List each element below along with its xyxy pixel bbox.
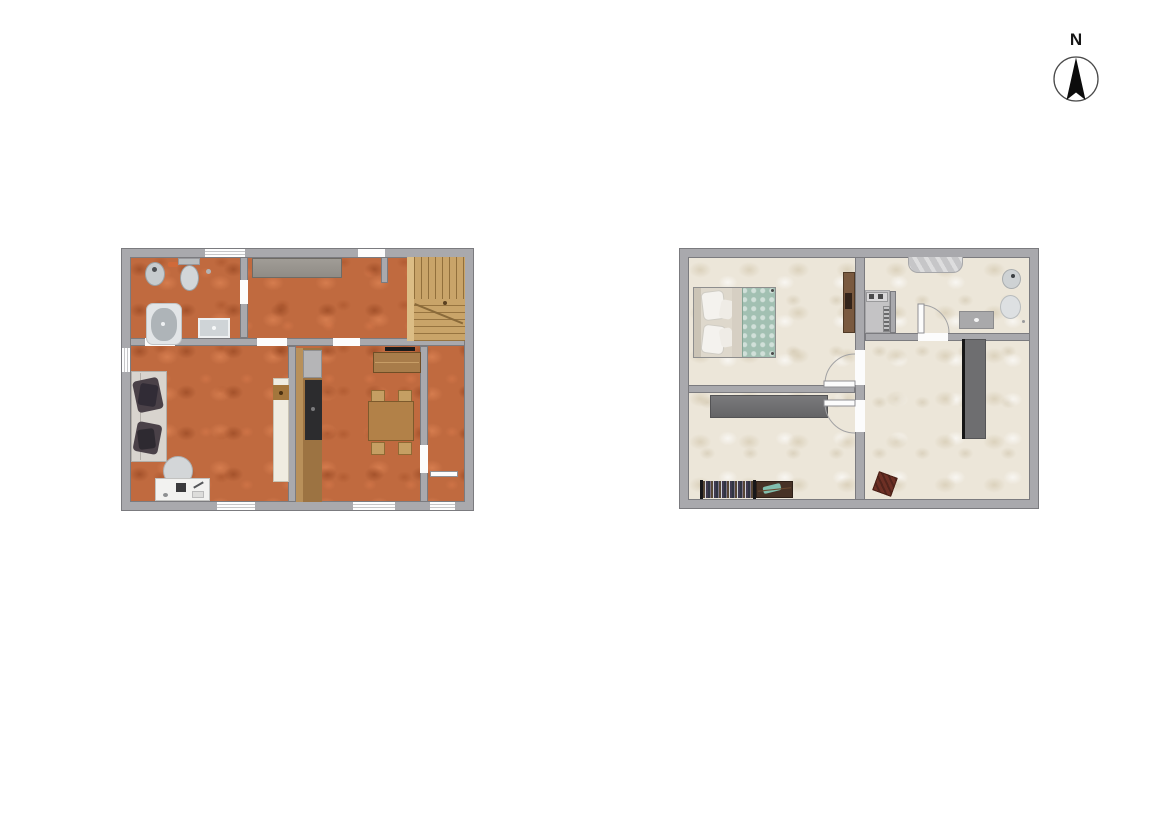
window-top [205, 249, 245, 257]
vanity-drain [974, 318, 979, 322]
toilet-icon [180, 265, 199, 291]
counter-stove [305, 380, 322, 440]
kitchen-corridor-wall [420, 346, 428, 502]
cabinet-dark-edge [962, 339, 965, 439]
sofa-pillow-2 [137, 383, 158, 408]
bidet-drain [152, 267, 157, 272]
bed-corner-dot-1 [771, 289, 774, 292]
bathroom-door-leaf [918, 304, 924, 333]
wardrobe-handle-item [845, 293, 852, 309]
bedroom-door-arc [825, 354, 855, 384]
desk-icon [155, 478, 210, 501]
counter-wood-edge [296, 348, 303, 502]
window-bottom-living [217, 502, 255, 510]
kitchen-counter-icon [296, 348, 322, 502]
washbasin-drain [212, 326, 216, 330]
rack-end-cap-1 [700, 480, 703, 499]
vanity-sink-icon [959, 311, 994, 329]
sideboard-shelf-line [375, 362, 419, 363]
hall-wardrobe [252, 258, 342, 278]
ground-floor-plan [122, 249, 473, 510]
nook-wall [890, 291, 896, 333]
toilet-roll [206, 269, 211, 274]
counter-fridge [303, 350, 322, 378]
bidet-icon [145, 262, 165, 286]
rack-clothes [700, 481, 756, 498]
compass-north-label: N [1048, 30, 1104, 50]
stair-upper-treads [414, 257, 465, 299]
nook-item-1 [869, 294, 874, 299]
dining-chair-3 [371, 442, 385, 455]
bed-corner-dot-2 [771, 352, 774, 355]
hall-living-door-opening [257, 338, 287, 346]
floor-plan-canvas: N [0, 0, 1154, 817]
towel-icon [168, 262, 178, 267]
desk-papers [192, 491, 204, 498]
bathroom-door-opening [240, 280, 248, 304]
desk-item-round [163, 493, 168, 497]
sofa-pillow-4 [137, 428, 156, 450]
corridor-door-leaf [430, 471, 458, 477]
second-bedroom-wardrobe [710, 395, 828, 418]
bed-blanket [742, 288, 775, 357]
upper-toilet-icon [1002, 269, 1021, 289]
bathtub-icon [146, 303, 182, 345]
second-bedroom-door-leaf [824, 400, 855, 406]
bedroom-dividing-wall [688, 385, 855, 393]
clothes-rack-icon [700, 481, 793, 498]
bed-fold-strip [732, 288, 742, 357]
living-kitchen-wall [288, 346, 296, 502]
entrance-opening [358, 249, 385, 257]
compass: N [1048, 30, 1104, 110]
upper-toilet-dot [1011, 274, 1015, 278]
bedroom-door-opening [855, 350, 865, 385]
desk-pen [193, 481, 204, 488]
compass-rose-icon [1048, 50, 1104, 108]
upper-bidet-dot [1022, 320, 1025, 323]
cabinet-knob [279, 391, 283, 395]
stair-wall-stub [381, 257, 388, 283]
tall-cabinet-icon [962, 339, 986, 439]
stool-icon [872, 471, 898, 497]
radiator-icon [884, 307, 889, 331]
sofa-icon [131, 371, 167, 462]
second-bedroom-door-opening [855, 400, 865, 432]
staircase-icon [407, 257, 465, 341]
washbasin-icon [198, 318, 230, 338]
desk-nook [865, 290, 890, 333]
shower-tub-icon [908, 257, 963, 273]
corridor-door-opening [420, 445, 428, 473]
stove-knob [311, 407, 315, 411]
stair-newel-post [443, 301, 447, 305]
stair-stringer [407, 257, 414, 341]
dining-chair-4 [398, 442, 412, 455]
bedroom-wardrobe [843, 272, 855, 333]
double-bed-icon [693, 287, 776, 358]
living-cabinet [273, 378, 289, 482]
window-bottom-corridor [430, 502, 455, 510]
cabinet-wood-top [273, 385, 289, 400]
window-bottom-kitchen [353, 502, 395, 510]
bathtub-drain [161, 322, 165, 326]
window-left-living [122, 348, 130, 372]
second-bedroom-door-arc [825, 403, 855, 433]
sideboard-icon [373, 352, 421, 373]
bathroom-door-arc [921, 305, 949, 333]
upper-floor-plan [680, 249, 1038, 508]
upper-bidet-icon [1000, 295, 1021, 319]
nook-item-2 [878, 294, 883, 299]
sideboard-top-item [385, 347, 415, 351]
toilet-tank [178, 258, 200, 265]
bathroom-door-opening [918, 333, 948, 341]
hall-kitchen-door-opening [333, 338, 360, 346]
dining-table-icon [368, 401, 414, 441]
desk-laptop [176, 483, 186, 492]
